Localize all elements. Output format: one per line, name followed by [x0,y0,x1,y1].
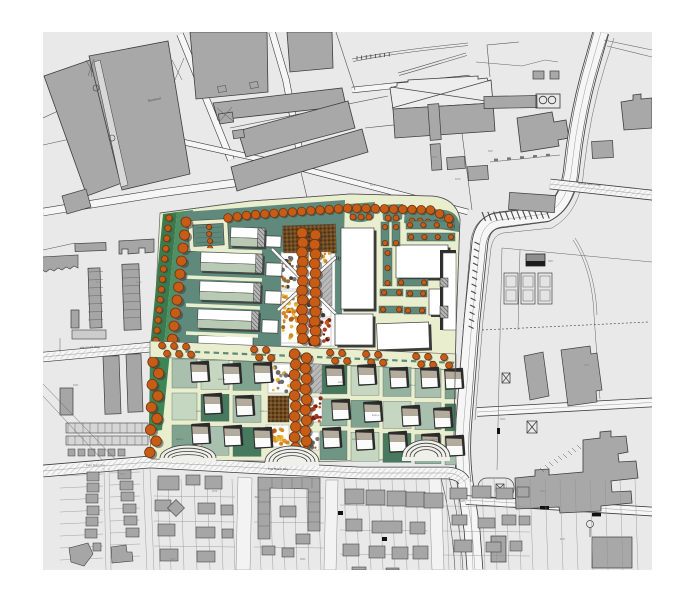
svg-text:6024: 6024 [73,384,79,387]
svg-text:6044: 6044 [500,418,506,421]
svg-text:6091: 6091 [540,490,546,493]
svg-text:6079: 6079 [212,490,218,493]
svg-text:4782 sf: 4782 sf [218,379,226,381]
svg-text:6081: 6081 [255,496,261,499]
svg-text:Baker Beach Way: Baker Beach Way [86,464,106,467]
svg-text:6077: 6077 [120,473,126,476]
svg-text:6097: 6097 [560,538,566,541]
svg-text:6074: 6074 [370,184,376,187]
svg-text:6078: 6078 [455,178,461,181]
svg-text:6085: 6085 [460,500,466,503]
svg-text:6089: 6089 [170,558,176,561]
svg-text:6060: 6060 [432,156,438,159]
svg-text:Fleet: Fleet [96,281,102,284]
svg-text:6093: 6093 [300,558,306,561]
svg-text:4782 sf: 4782 sf [352,439,360,441]
svg-text:6030: 6030 [136,281,142,284]
svg-text:6067: 6067 [488,150,494,153]
svg-text:6083: 6083 [345,503,351,506]
svg-text:4782 sf: 4782 sf [430,439,438,441]
svg-text:6057: 6057 [548,260,554,263]
svg-text:4782 sf: 4782 sf [260,411,268,413]
svg-text:4782 sf: 4782 sf [176,439,184,441]
svg-text:6046: 6046 [584,364,590,367]
svg-text:4782 sf: 4782 sf [338,382,346,384]
svg-text:4782 sf: 4782 sf [372,415,380,417]
svg-text:Tide Beach Way: Tide Beach Way [268,467,289,471]
svg-text:4782 sf: 4782 sf [408,385,416,387]
svg-text:4782 sf: 4782 sf [196,411,204,413]
